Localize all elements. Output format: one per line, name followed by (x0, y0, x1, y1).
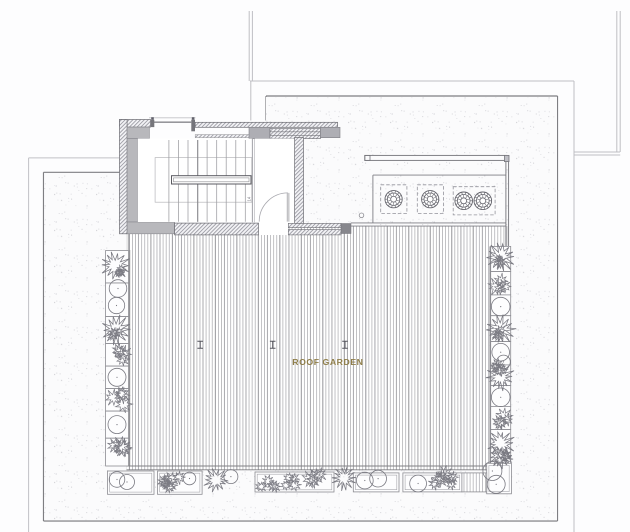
svg-text:ROOF GARDEN: ROOF GARDEN (292, 357, 363, 367)
svg-text:14: 14 (247, 196, 252, 201)
